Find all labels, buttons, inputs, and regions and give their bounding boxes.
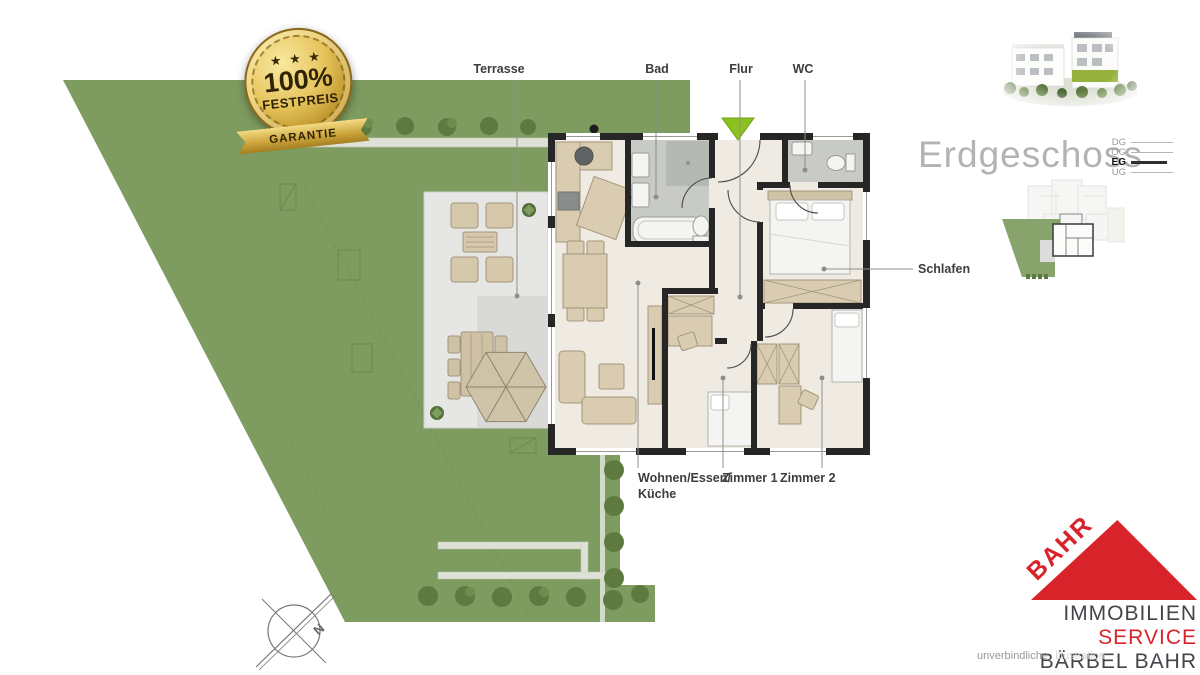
plan-marker-dot [590, 125, 599, 134]
bahr-logo-text: IMMOBILIEN SERVICE BÄRBEL BAHR [1000, 602, 1197, 674]
level-item-og[interactable]: OG [1100, 147, 1173, 157]
label-flur: Flur [729, 62, 753, 76]
label-terrasse: Terrasse [473, 62, 524, 76]
label-wohnen-line2: Küche [638, 487, 676, 501]
compass-icon: N [256, 593, 335, 670]
label-bad: Bad [645, 62, 669, 76]
floorplan-page: N [0, 0, 1200, 675]
photo-fade-overlay [988, 15, 1153, 115]
label-schlafen: Schlafen [918, 262, 970, 276]
mini-site-map [1002, 180, 1124, 279]
terrace [424, 192, 548, 428]
level-nav: DG OG EG UG [1100, 137, 1173, 177]
badge-festpreis: FESTPREIS [261, 90, 339, 113]
level-tick [1131, 161, 1167, 164]
level-tick [1131, 172, 1173, 173]
level-item-eg[interactable]: EG [1100, 157, 1173, 167]
badge-percent: 100% [262, 63, 334, 97]
level-tick [1131, 142, 1173, 143]
logo-service: SERVICE [1000, 626, 1197, 650]
disclaimer-word2: Illustration [1055, 650, 1105, 662]
level-item-ug[interactable]: UG [1100, 167, 1173, 177]
label-zimmer1: Zimmer 1 [722, 471, 778, 485]
disclaimer-word1: unverbindliche [977, 650, 1048, 662]
compass-north-label: N [310, 621, 327, 638]
bedroom-furniture [764, 191, 861, 303]
level-tick [1131, 152, 1173, 153]
badge-stars-icon: ★ ★ ★ [269, 48, 323, 69]
label-wc: WC [793, 62, 814, 76]
level-label-ug: UG [1100, 167, 1126, 178]
label-zimmer2: Zimmer 2 [780, 471, 836, 485]
level-item-dg[interactable]: DG [1100, 137, 1173, 147]
label-wohnen-line1: Wohnen/Essen/ [638, 471, 731, 485]
logo-immobilien: IMMOBILIEN [1000, 602, 1197, 626]
festpreis-badge: ★ ★ ★ 100% FESTPREIS GARANTIE [234, 22, 362, 153]
disclaimer: unverbindliche Illustration [977, 650, 1105, 662]
